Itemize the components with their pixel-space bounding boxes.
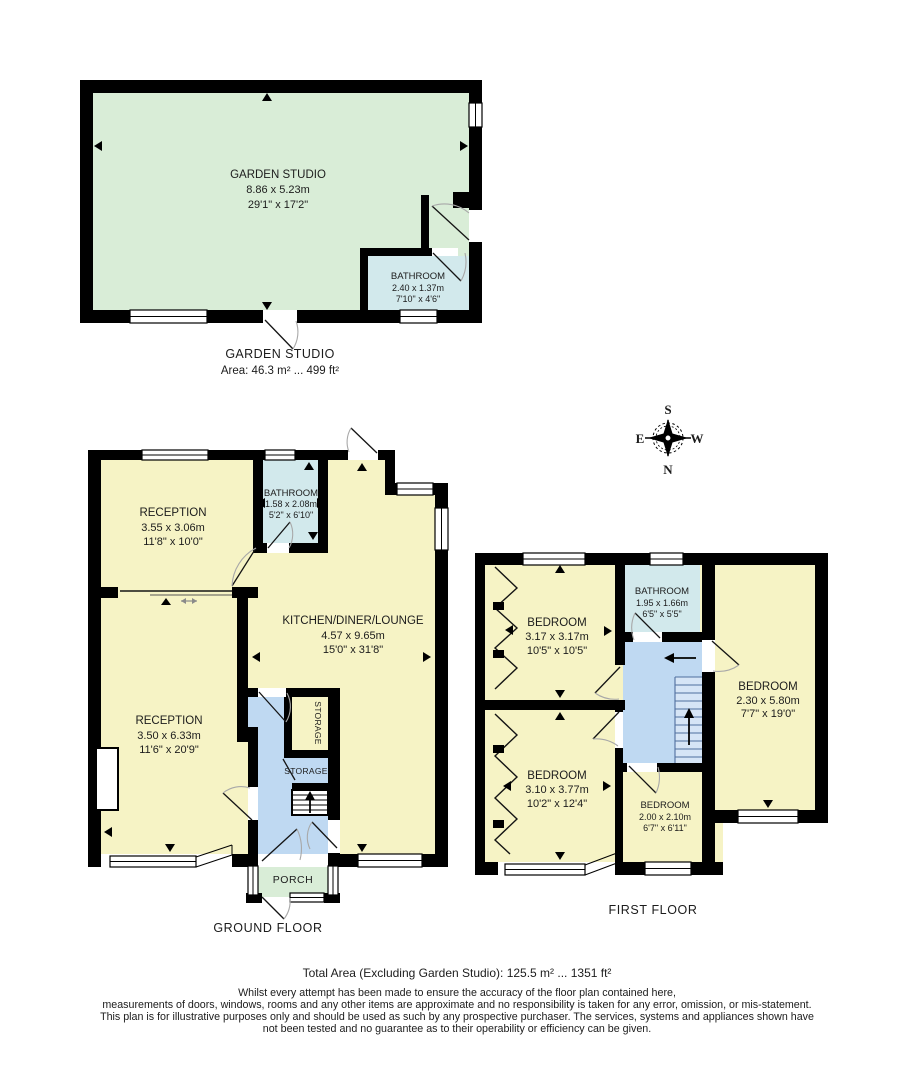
gf-kitchen-metric: 4.57 x 9.65m	[321, 630, 385, 642]
ff-bedroom3-metric: 3.10 x 3.77m	[525, 784, 589, 796]
ff-bedroom1-label: BEDROOM	[527, 617, 586, 629]
first-floor-caption: FIRST FLOOR	[608, 903, 697, 917]
compass-south: S	[664, 402, 671, 417]
ff-bedroom2-label: BEDROOM	[738, 681, 797, 693]
footer-text: Total Area (Excluding Garden Studio): 12…	[100, 966, 814, 1035]
gf-reception1-label: RECEPTION	[139, 507, 206, 519]
studio-bathroom-imperial: 7'10" x 4'6"	[396, 294, 440, 304]
gf-bathroom-label: BATHROOM	[264, 488, 318, 499]
gf-bathroom-imperial: 5'2" x 6'10"	[269, 510, 313, 520]
ff-bathroom-imperial: 6'5" x 5'5"	[642, 609, 681, 619]
first-floor-plan: BEDROOM 3.17 x 3.17m 10'5" x 10'5" BATHR…	[475, 553, 828, 917]
garden-studio-room-label: GARDEN STUDIO	[230, 169, 326, 181]
stairs	[292, 790, 328, 815]
ff-bedroom2-imperial: 7'7" x 19'0"	[741, 708, 795, 720]
ff-bedroom3-imperial: 10'2" x 12'4"	[527, 798, 587, 810]
ground-floor-caption: GROUND FLOOR	[213, 921, 322, 935]
garden-studio-plan: GARDEN STUDIO 8.86 x 5.23m 29'1" x 17'2"…	[80, 80, 482, 377]
compass-west: W	[691, 431, 704, 446]
ff-bedroom2-metric: 2.30 x 5.80m	[736, 695, 800, 707]
disclaimer-line: not been tested and no guarantee as to t…	[263, 1023, 651, 1035]
gf-kitchen-label: KITCHEN/DINER/LOUNGE	[282, 615, 424, 627]
garden-studio-area: Area: 46.3 m² ... 499 ft²	[221, 365, 339, 377]
studio-bathroom-label: BATHROOM	[391, 271, 445, 282]
disclaimer-line: This plan is for illustrative purposes o…	[100, 1011, 814, 1023]
garden-studio-caption: GARDEN STUDIO	[225, 347, 334, 361]
disclaimer-line: measurements of doors, windows, rooms an…	[102, 999, 811, 1011]
garden-studio-room-metric: 8.86 x 5.23m	[246, 184, 310, 196]
gf-reception2-metric: 3.50 x 6.33m	[137, 730, 201, 742]
disclaimer-line: Whilst every attempt has been made to en…	[238, 987, 676, 999]
gf-reception1-metric: 3.55 x 3.06m	[141, 522, 205, 534]
studio-bathroom-metric: 2.40 x 1.37m	[392, 283, 444, 293]
gf-bathroom-metric: 1.58 x 2.08m	[265, 499, 317, 509]
floorplan-page: GARDEN STUDIO 8.86 x 5.23m 29'1" x 17'2"…	[0, 0, 906, 1080]
garden-studio-room-imperial: 29'1" x 17'2"	[248, 199, 308, 211]
ff-bedroom4-metric: 2.00 x 2.10m	[639, 812, 691, 822]
gf-storage2-label: STORAGE	[284, 766, 328, 776]
ff-bedroom1-imperial: 10'5" x 10'5"	[527, 645, 587, 657]
ff-bedroom1-metric: 3.17 x 3.17m	[525, 631, 589, 643]
ff-bedroom4-imperial: 6'7" x 6'11"	[643, 823, 687, 833]
ff-bedroom3-label: BEDROOM	[527, 770, 586, 782]
compass-icon: S N E W	[636, 402, 704, 477]
gf-porch-label: PORCH	[273, 874, 313, 886]
ff-bathroom-metric: 1.95 x 1.66m	[636, 598, 688, 608]
floorplan-drawing: GARDEN STUDIO 8.86 x 5.23m 29'1" x 17'2"…	[0, 0, 906, 1080]
ff-bedroom4-label: BEDROOM	[640, 800, 689, 811]
gf-reception2-label: RECEPTION	[135, 715, 202, 727]
gf-kitchen-imperial: 15'0" x 31'8"	[323, 644, 383, 656]
ff-bathroom-label: BATHROOM	[635, 586, 689, 597]
compass-north: N	[663, 462, 673, 477]
gf-storage1-label: STORAGE	[313, 701, 323, 745]
gf-reception2-imperial: 11'6" x 20'9"	[139, 744, 199, 756]
gf-reception1-imperial: 11'8" x 10'0"	[143, 536, 203, 548]
total-area-text: Total Area (Excluding Garden Studio): 12…	[303, 966, 612, 980]
ground-floor-plan: RECEPTION 3.55 x 3.06m 11'8" x 10'0" BAT…	[88, 428, 448, 935]
compass-east: E	[636, 431, 645, 446]
